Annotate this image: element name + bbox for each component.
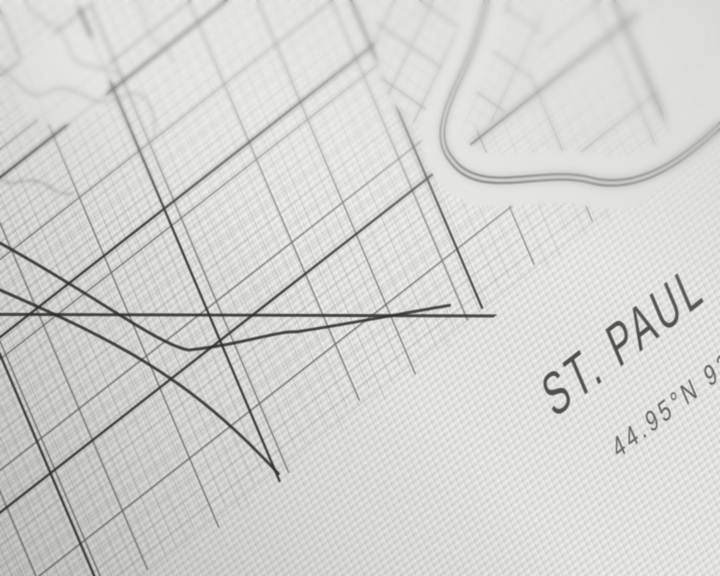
- canvas-photo: ST. PAUL 44.95°N 93.09°W: [0, 0, 720, 576]
